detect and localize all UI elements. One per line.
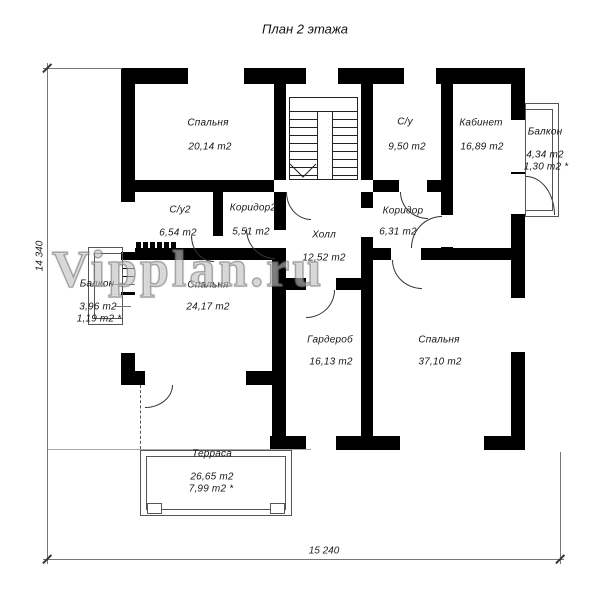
page-title: План 2 этажа	[262, 22, 348, 37]
room-name-hall: Холл	[312, 230, 336, 241]
window	[188, 68, 244, 84]
door-arc	[145, 385, 173, 408]
room-name-corridor: Коридор	[383, 206, 424, 217]
room-name-corridor-2: Коридор2	[230, 203, 276, 214]
extension-line	[43, 68, 122, 69]
terrace-corner-post	[147, 503, 162, 514]
room-area-bathroom-1: 9,50 m2	[388, 142, 426, 153]
wall	[427, 180, 441, 192]
room-name-bedroom-1: Спальня	[187, 118, 228, 129]
extension-line	[560, 452, 561, 564]
window	[121, 295, 135, 353]
room-name-bathroom-2: С/у2	[169, 205, 190, 216]
room-area-wardrobe: 16,13 m2	[309, 357, 352, 368]
window	[511, 298, 525, 352]
wall	[121, 371, 145, 385]
room-name-bathroom-1: С/у	[397, 117, 413, 128]
room-area-corridor: 6,31 m2	[379, 227, 417, 238]
room-area2-balcony-left: 1,19 m2 *	[77, 314, 122, 325]
room-area2-terrace: 7,99 m2 *	[189, 484, 234, 495]
door-arc	[286, 192, 311, 220]
wall	[361, 237, 373, 436]
wall	[274, 84, 286, 180]
window	[306, 436, 336, 450]
vent-mark	[362, 103, 370, 110]
watermark: Vipplan.ru	[52, 240, 324, 299]
room-area-bathroom-2: 6,54 m2	[159, 228, 197, 239]
room-area-balcony-left: 3,96 m2	[79, 302, 117, 313]
dimension-line-vertical	[47, 63, 48, 564]
wall	[361, 192, 373, 208]
terrace-dashed-edge	[140, 385, 141, 449]
room-area-terrace: 26,65 m2	[190, 472, 233, 483]
wall	[421, 248, 525, 260]
dimension-width: 15 240	[309, 546, 340, 557]
floor-plan: Спальня 20,14 m2 С/у 9,50 m2 Кабинет 16,…	[0, 0, 600, 605]
door-opening	[511, 174, 525, 214]
room-name-office: Кабинет	[459, 118, 502, 129]
window	[404, 68, 436, 84]
room-area2-balcony-right: 1,30 m2 *	[524, 162, 569, 173]
leader-line	[115, 306, 131, 307]
room-area-balcony-right: 4,34 m2	[526, 150, 564, 161]
dimension-line-horizontal	[43, 559, 564, 560]
wall	[373, 180, 399, 192]
wall	[134, 180, 274, 192]
terrace-corner-post	[270, 503, 285, 514]
room-area-corridor-2: 5,51 m2	[232, 227, 270, 238]
window	[173, 372, 246, 383]
room-name-wardrobe: Гардероб	[307, 335, 353, 346]
window	[306, 68, 338, 84]
door-arc	[392, 260, 422, 289]
room-area-office: 16,89 m2	[460, 142, 503, 153]
dimension-height: 14 340	[35, 241, 46, 272]
window	[400, 436, 484, 450]
vent-mark	[362, 113, 370, 120]
room-name-terrace: Терраса	[192, 449, 232, 460]
wall	[441, 84, 453, 215]
vent-mark	[362, 93, 370, 100]
room-area-bedroom-2: 24,17 m2	[186, 302, 229, 313]
room-name-bedroom-3: Спальня	[418, 335, 459, 346]
room-name-balcony-right: Балкон	[528, 127, 563, 138]
wall	[213, 192, 223, 236]
room-area-bedroom-3: 37,10 m2	[418, 357, 461, 368]
room-area-bedroom-1: 20,14 m2	[188, 142, 231, 153]
staircase	[286, 84, 361, 180]
